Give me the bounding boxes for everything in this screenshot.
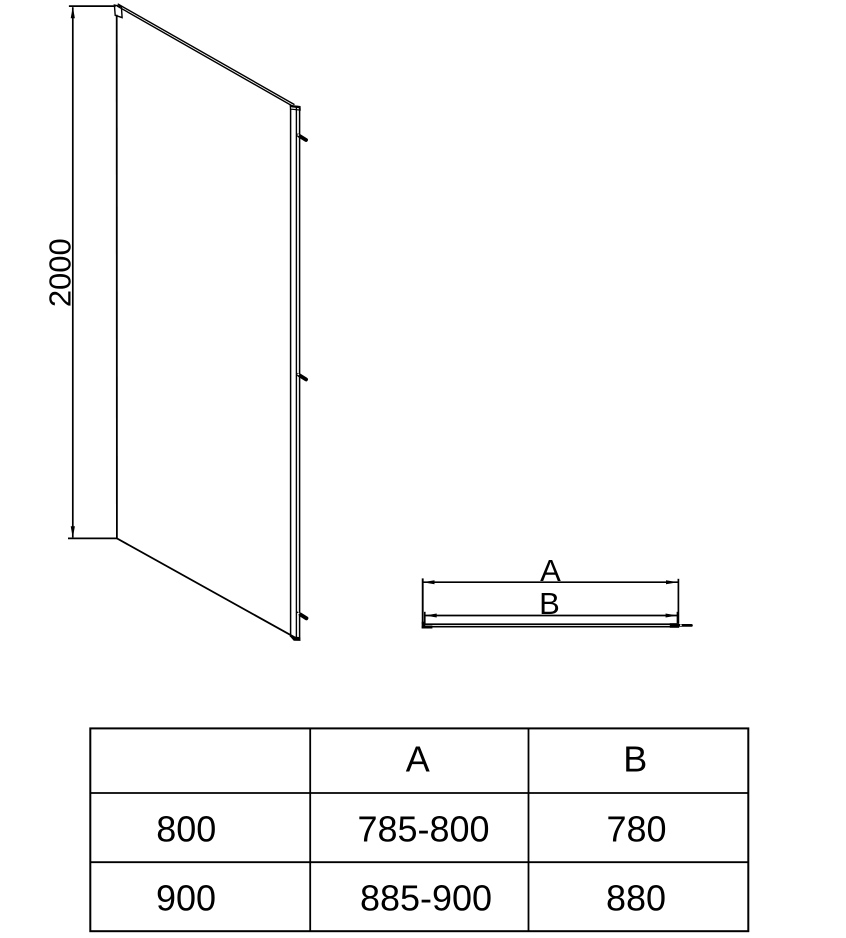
- svg-text:B: B: [623, 738, 647, 779]
- svg-text:885-900: 885-900: [360, 877, 492, 918]
- svg-text:785-800: 785-800: [357, 808, 489, 849]
- svg-text:800: 800: [156, 808, 216, 849]
- svg-text:900: 900: [156, 877, 216, 918]
- svg-text:2000: 2000: [43, 238, 78, 307]
- svg-text:B: B: [539, 586, 560, 621]
- svg-text:780: 780: [606, 808, 666, 849]
- svg-text:880: 880: [606, 877, 666, 918]
- svg-text:A: A: [406, 738, 430, 779]
- svg-text:A: A: [540, 553, 561, 588]
